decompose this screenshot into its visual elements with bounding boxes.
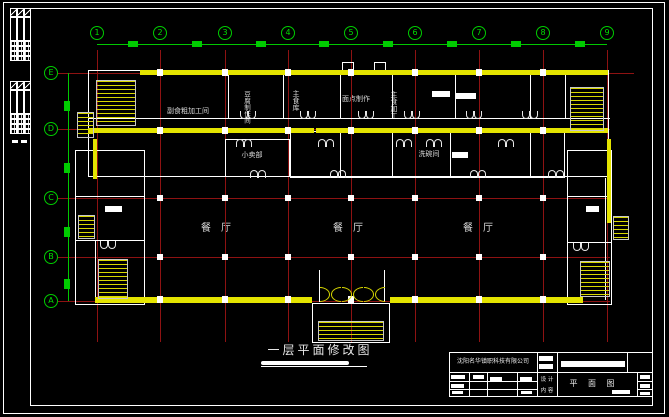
axis-bubble-left: C bbox=[44, 191, 58, 205]
revision-table-cell bbox=[10, 8, 17, 17]
column-marker bbox=[540, 296, 546, 303]
wall-line-vertical bbox=[392, 131, 393, 178]
revision-table-cell bbox=[17, 129, 24, 134]
dimension-tick bbox=[64, 279, 70, 289]
wall-yellow bbox=[88, 128, 314, 133]
column-marker bbox=[222, 195, 228, 201]
dimension-tick bbox=[192, 41, 202, 47]
column-marker bbox=[285, 296, 291, 303]
door-arc bbox=[326, 139, 334, 147]
axis-bubble-top: 6 bbox=[408, 26, 422, 40]
titleblock-bar bbox=[640, 384, 650, 388]
plan-title-underline bbox=[261, 361, 349, 365]
door-arc bbox=[366, 111, 374, 119]
door-arc bbox=[466, 111, 474, 119]
axis-bubble-left: E bbox=[44, 66, 58, 80]
revision-table-cell bbox=[24, 17, 31, 41]
axis-bubble-top: 3 bbox=[218, 26, 232, 40]
door-arc bbox=[404, 111, 412, 119]
door-arc bbox=[498, 139, 506, 147]
titleblock-bar bbox=[520, 377, 532, 381]
stair bbox=[580, 261, 610, 297]
axis-bubble-left: A bbox=[44, 294, 58, 308]
door-arc bbox=[478, 170, 486, 178]
dimension-tick bbox=[64, 163, 70, 173]
wall-yellow bbox=[607, 139, 611, 223]
column-marker bbox=[540, 69, 546, 76]
column-marker bbox=[285, 69, 291, 76]
door-arc bbox=[308, 111, 316, 119]
column-marker bbox=[412, 69, 418, 76]
wall-line-horizontal bbox=[637, 381, 653, 382]
door-arc bbox=[522, 111, 530, 119]
revision-table-cell bbox=[17, 56, 24, 61]
column-marker bbox=[157, 127, 163, 134]
titleblock-content-label: 内 容 bbox=[538, 386, 556, 394]
column-marker bbox=[348, 127, 354, 134]
door-arc bbox=[248, 111, 256, 119]
wall-line-vertical bbox=[627, 352, 628, 372]
column-marker bbox=[285, 195, 291, 201]
dimension-tick bbox=[128, 41, 138, 47]
room-label-dining-1: 餐厅 bbox=[196, 223, 246, 234]
wall-line-vertical bbox=[537, 352, 538, 372]
column-marker bbox=[348, 254, 354, 260]
door-arc bbox=[396, 139, 404, 147]
column-marker bbox=[222, 127, 228, 134]
titleblock-bar bbox=[452, 391, 463, 394]
column-marker bbox=[157, 69, 163, 76]
axis-bubble-top: 1 bbox=[90, 26, 104, 40]
wall-yellow bbox=[140, 70, 608, 75]
axis-bubble-left: D bbox=[44, 122, 58, 136]
column-marker bbox=[157, 296, 163, 303]
door-arc bbox=[404, 139, 412, 147]
wall-line-horizontal bbox=[449, 389, 537, 390]
door-arc bbox=[581, 243, 589, 251]
revision-table-cell bbox=[10, 90, 17, 114]
revision-table-cell bbox=[24, 81, 31, 90]
revision-table-cell bbox=[10, 129, 17, 134]
revision-table-cell bbox=[10, 17, 17, 41]
wall-line-vertical bbox=[450, 131, 451, 178]
revision-table-mark bbox=[12, 140, 18, 143]
wall-yellow bbox=[390, 297, 583, 303]
dimension-tick bbox=[383, 41, 393, 47]
wall-yellow bbox=[93, 139, 97, 179]
axis-bubble-top: 2 bbox=[153, 26, 167, 40]
plan-title: 一层平面修改图 bbox=[258, 344, 382, 357]
wall-line-horizontal bbox=[449, 381, 537, 382]
titleblock-bar bbox=[451, 375, 465, 379]
revision-table-cell bbox=[24, 90, 31, 114]
column-marker bbox=[157, 195, 163, 201]
dimension-tick bbox=[256, 41, 266, 47]
door-arc bbox=[330, 170, 338, 178]
door-arc bbox=[556, 170, 564, 178]
titleblock-bar bbox=[473, 375, 484, 379]
revision-table-cell bbox=[10, 81, 17, 90]
door-arc bbox=[412, 111, 420, 119]
stair bbox=[318, 321, 384, 341]
wall-line-vertical bbox=[340, 70, 341, 118]
titleblock-bar bbox=[640, 392, 650, 395]
wall-line-vertical bbox=[537, 372, 538, 397]
door-arc bbox=[318, 139, 326, 147]
column-marker bbox=[540, 254, 546, 260]
column-marker bbox=[285, 254, 291, 260]
wall-line-horizontal bbox=[449, 372, 653, 373]
axis-bubble-top: 5 bbox=[344, 26, 358, 40]
door-arc bbox=[300, 111, 308, 119]
wall-line-vertical bbox=[557, 352, 558, 372]
column-marker bbox=[540, 127, 546, 134]
fixture bbox=[452, 152, 468, 158]
wall-line-vertical bbox=[487, 372, 488, 397]
wall-line-vertical bbox=[517, 372, 518, 397]
column-marker bbox=[476, 69, 482, 76]
wall-yellow bbox=[316, 128, 608, 133]
column-marker bbox=[476, 127, 482, 134]
wall-line-horizontal bbox=[75, 196, 145, 197]
fixture bbox=[105, 206, 122, 212]
dimension-tick bbox=[447, 41, 457, 47]
door-arc bbox=[426, 139, 434, 147]
wall-line-vertical bbox=[530, 131, 531, 178]
axis-line-top bbox=[97, 44, 607, 45]
stair bbox=[98, 259, 128, 299]
column-marker bbox=[285, 127, 291, 134]
wall-line-horizontal bbox=[637, 389, 653, 390]
titleblock-drawing-name: 平 面 图 bbox=[563, 378, 625, 389]
column-marker bbox=[476, 296, 482, 303]
dimension-tick bbox=[319, 41, 329, 47]
wall-line-vertical bbox=[228, 70, 229, 118]
column-marker bbox=[348, 69, 354, 76]
titleblock-company: 沈阳名华镇职科技有限公司 bbox=[451, 356, 535, 365]
door-arc bbox=[240, 111, 248, 119]
revision-table-cell bbox=[24, 56, 31, 61]
room-label-dining-3: 餐厅 bbox=[458, 223, 508, 234]
wall-line-vertical bbox=[565, 70, 566, 118]
door-arc bbox=[434, 139, 442, 147]
column-marker bbox=[412, 127, 418, 134]
door-arc bbox=[474, 111, 482, 119]
stair bbox=[613, 216, 629, 240]
drawing-canvas[interactable]: 副食粗加工间 豆腐制作间 主食库 面点制作 主食加工 洗碗间 小卖部 餐厅 餐厅… bbox=[0, 0, 669, 417]
door-arc bbox=[258, 170, 266, 178]
titleblock-bar bbox=[539, 364, 553, 369]
revision-table-cell bbox=[17, 17, 24, 41]
stair bbox=[78, 215, 95, 239]
wall-line-vertical bbox=[557, 372, 558, 397]
column-marker bbox=[412, 296, 418, 303]
wall-line-horizontal bbox=[567, 196, 612, 197]
door-arc bbox=[100, 241, 108, 249]
door-arc bbox=[236, 139, 244, 147]
column-marker bbox=[476, 254, 482, 260]
dimension-tick bbox=[64, 227, 70, 237]
column-marker bbox=[157, 254, 163, 260]
axis-bubble-top: 7 bbox=[472, 26, 486, 40]
axis-bubble-top: 8 bbox=[536, 26, 550, 40]
dimension-tick bbox=[64, 101, 70, 111]
wall-line-vertical bbox=[283, 70, 284, 118]
titleblock-bar bbox=[640, 375, 650, 379]
door-arc bbox=[548, 170, 556, 178]
door-arc bbox=[470, 170, 478, 178]
axis-bubble-top: 4 bbox=[281, 26, 295, 40]
stair bbox=[96, 80, 136, 126]
door-arc bbox=[250, 170, 258, 178]
column-marker bbox=[412, 254, 418, 260]
wall-line-vertical bbox=[95, 240, 96, 300]
revision-table-cell bbox=[24, 129, 31, 134]
titleblock-bar bbox=[612, 390, 630, 394]
titleblock-bar bbox=[561, 361, 625, 367]
door-arc bbox=[506, 139, 514, 147]
axis-bubble-left: B bbox=[44, 250, 58, 264]
door-arc bbox=[530, 111, 538, 119]
fixture bbox=[432, 91, 450, 97]
column-marker bbox=[222, 69, 228, 76]
door-arc bbox=[108, 241, 116, 249]
column-marker bbox=[476, 195, 482, 201]
titleblock-design-label: 设 计 bbox=[538, 375, 556, 383]
room-label-dining-2: 餐厅 bbox=[328, 223, 378, 234]
column-marker bbox=[540, 195, 546, 201]
door-arc bbox=[338, 170, 346, 178]
revision-table-cell bbox=[17, 81, 24, 90]
stair bbox=[77, 112, 94, 138]
plan-title-underline-thin bbox=[261, 366, 367, 367]
wall-line-vertical bbox=[637, 372, 638, 397]
dimension-tick bbox=[511, 41, 521, 47]
column-marker bbox=[222, 254, 228, 260]
revision-table-cell bbox=[17, 8, 24, 17]
revision-table-cell bbox=[17, 90, 24, 114]
column-marker bbox=[348, 195, 354, 201]
fixture bbox=[586, 206, 599, 212]
door-arc bbox=[358, 111, 366, 119]
wall-line-vertical bbox=[469, 372, 470, 397]
column-marker bbox=[222, 296, 228, 303]
titleblock-bar bbox=[451, 384, 464, 388]
wall-line-vertical bbox=[392, 70, 393, 118]
titleblock-bar bbox=[539, 356, 553, 361]
revision-table-cell bbox=[24, 8, 31, 17]
revision-table-cell bbox=[10, 56, 17, 61]
fixture bbox=[456, 93, 476, 99]
dimension-tick bbox=[575, 41, 585, 47]
revision-table-mark bbox=[21, 140, 27, 143]
titleblock-bar bbox=[490, 377, 502, 381]
door-arc bbox=[244, 139, 252, 147]
titleblock-bar bbox=[521, 391, 532, 394]
stair bbox=[570, 87, 604, 131]
column-marker bbox=[412, 195, 418, 201]
door-arc bbox=[573, 243, 581, 251]
axis-bubble-top: 9 bbox=[600, 26, 614, 40]
